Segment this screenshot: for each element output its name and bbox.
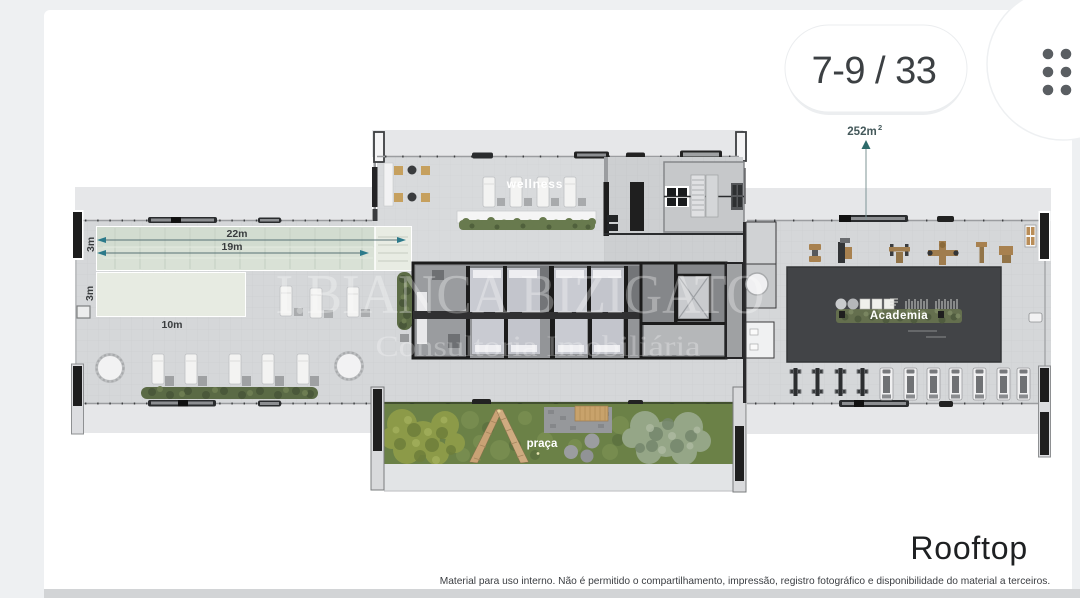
svg-text:22m: 22m [226, 228, 247, 240]
svg-text:Consultoria Imobiliária: Consultoria Imobiliária [376, 330, 701, 363]
svg-text:19m: 19m [221, 241, 242, 253]
svg-text:Material para uso interno. Não: Material para uso interno. Não é permiti… [440, 576, 1050, 587]
svg-text:252m: 252m [847, 126, 876, 138]
svg-text:Academia: Academia [870, 310, 928, 322]
svg-text:3m: 3m [85, 237, 97, 252]
svg-text:10m: 10m [161, 319, 182, 331]
svg-text:2: 2 [878, 123, 882, 132]
svg-text:7-9 / 33: 7-9 / 33 [812, 50, 937, 92]
svg-text:3m: 3m [84, 286, 96, 301]
svg-text:Rooftop: Rooftop [910, 530, 1028, 566]
svg-text:I.BIANCA BIZIGATO: I.BIANCA BIZIGATO [276, 264, 765, 326]
svg-text:wellness: wellness [506, 177, 563, 191]
svg-text:praça: praça [527, 438, 558, 450]
